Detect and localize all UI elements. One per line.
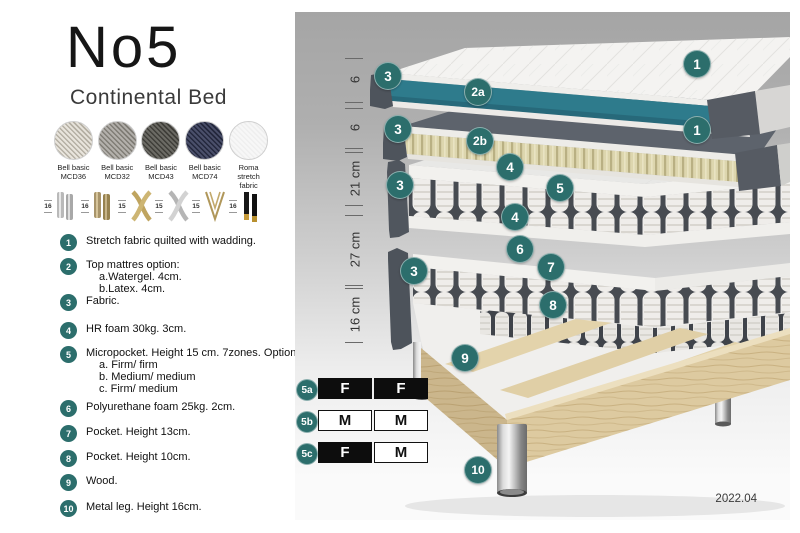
- part-description: Stretch fabric quilted with wadding.: [86, 235, 300, 247]
- part-description: Pocket. Height 10cm.: [86, 451, 300, 463]
- callout-3: 3: [386, 171, 414, 199]
- part-number-badge: 6: [60, 400, 77, 417]
- dimension-tick: [345, 148, 363, 149]
- firmness-row-label: 5b: [296, 411, 318, 433]
- part-description-text: Metal leg. Height 16cm.: [86, 501, 300, 513]
- callout-3: 3: [374, 62, 402, 90]
- callout-10: 10: [464, 456, 492, 484]
- part-description-text: Polyurethane foam 25kg. 2cm.: [86, 401, 300, 413]
- part-description-text: Stretch fabric quilted with wadding.: [86, 235, 300, 247]
- part-description-text: HR foam 30kg. 3cm.: [86, 323, 300, 335]
- firmness-cell: M: [374, 442, 428, 463]
- bottom-box-layer: [388, 248, 790, 497]
- part-description: Micropocket. Height 15 cm. 7zones. Optio…: [86, 347, 300, 395]
- dimension-tick: [345, 288, 363, 289]
- part-description: Pocket. Height 13cm.: [86, 426, 300, 438]
- part-sub-option: b. Medium/ medium: [99, 371, 300, 383]
- dimension-tick: [345, 152, 363, 153]
- part-sub-option: b.Latex. 4cm.: [99, 283, 300, 295]
- part-sub-option: a. Firm/ firm: [99, 359, 300, 371]
- dimension-label: 21 cm: [348, 160, 363, 196]
- firmness-row-label: 5a: [296, 379, 318, 401]
- part-description: Polyurethane foam 25kg. 2cm.: [86, 401, 300, 413]
- part-number-badge: 1: [60, 234, 77, 251]
- part-description: Fabric.: [86, 295, 300, 307]
- part-sub-option: c. Firm/ medium: [99, 383, 300, 395]
- callout-2b: 2b: [466, 127, 494, 155]
- bed-infographic: No5 Continental Bed Bell basicMCD36Bell …: [0, 0, 800, 533]
- callout-2a: 2a: [464, 78, 492, 106]
- version-label: 2022.04: [715, 493, 757, 505]
- callout-8: 8: [539, 291, 567, 319]
- callout-4: 4: [496, 153, 524, 181]
- dimension-label: 6: [348, 62, 363, 98]
- dimension-tick: [345, 58, 363, 59]
- callout-4: 4: [501, 203, 529, 231]
- callout-3: 3: [400, 257, 428, 285]
- part-number-badge: 7: [60, 425, 77, 442]
- diagram-panel: 6621 cm27 cm16 cm 32a132b143546738910 5a…: [295, 12, 790, 520]
- dimension-tick: [345, 102, 363, 103]
- part-description: Top mattres option:a.Watergel. 4cm.b.Lat…: [86, 259, 300, 295]
- firmness-bar: FF: [318, 378, 428, 399]
- callout-9: 9: [451, 344, 479, 372]
- part-description-text: Micropocket. Height 15 cm. 7zones. Optio…: [86, 347, 300, 359]
- firmness-cell: M: [374, 410, 428, 431]
- callout-5: 5: [546, 174, 574, 202]
- part-sub-option: a.Watergel. 4cm.: [99, 271, 300, 283]
- part-description-text: Wood.: [86, 475, 300, 487]
- callout-7: 7: [537, 253, 565, 281]
- dimension-tick: [345, 205, 363, 206]
- firmness-row-label: 5c: [296, 443, 318, 465]
- dimension-label: 16 cm: [348, 297, 363, 333]
- callout-1: 1: [683, 116, 711, 144]
- firmness-cell: F: [374, 378, 428, 399]
- part-description-text: Fabric.: [86, 295, 300, 307]
- dimension-tick: [345, 215, 363, 216]
- part-description: Metal leg. Height 16cm.: [86, 501, 300, 513]
- part-description: Wood.: [86, 475, 300, 487]
- firmness-bar: MM: [318, 410, 428, 431]
- dimension-tick: [345, 285, 363, 286]
- firmness-cell: F: [318, 378, 372, 399]
- firmness-cell: M: [318, 410, 372, 431]
- part-description-text: Pocket. Height 13cm.: [86, 426, 300, 438]
- callout-6: 6: [506, 235, 534, 263]
- dimension-label: 6: [348, 110, 363, 146]
- callout-3: 3: [384, 115, 412, 143]
- part-number-badge: 8: [60, 450, 77, 467]
- part-description-text: Pocket. Height 10cm.: [86, 451, 300, 463]
- part-description-text: Top mattres option:: [86, 259, 300, 271]
- part-number-badge: 10: [60, 500, 77, 517]
- part-number-badge: 9: [60, 474, 77, 491]
- firmness-bar: FM: [318, 442, 428, 463]
- part-description: HR foam 30kg. 3cm.: [86, 323, 300, 335]
- dimension-tick: [345, 342, 363, 343]
- firmness-cell: F: [318, 442, 372, 463]
- part-number-badge: 2: [60, 258, 77, 275]
- part-number-badge: 5: [60, 346, 77, 363]
- part-number-badge: 3: [60, 294, 77, 311]
- parts-list: 1Stretch fabric quilted with wadding.2To…: [50, 0, 302, 533]
- dimension-label: 27 cm: [348, 232, 363, 268]
- callout-1: 1: [683, 50, 711, 78]
- part-number-badge: 4: [60, 322, 77, 339]
